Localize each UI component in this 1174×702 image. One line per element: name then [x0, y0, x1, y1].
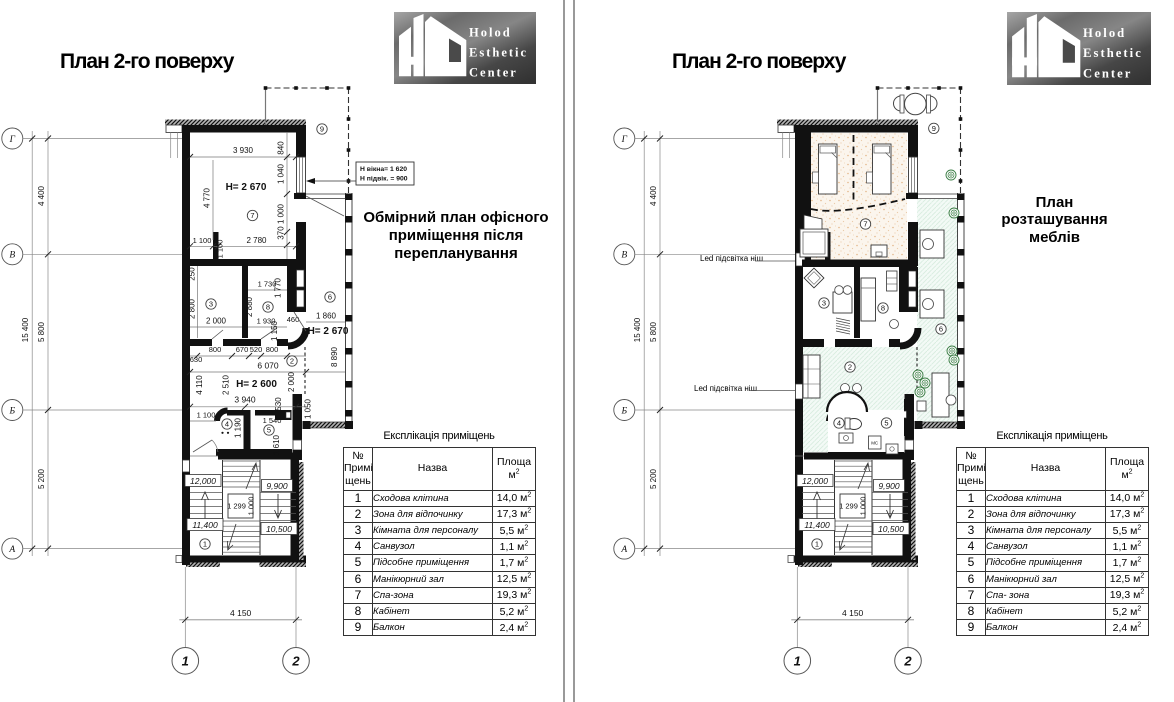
svg-text:6: 6 [328, 293, 332, 302]
svg-text:Н вікна= 1 620: Н вікна= 1 620 [360, 165, 407, 173]
svg-text:8: 8 [881, 304, 885, 313]
svg-text:А: А [8, 545, 15, 555]
svg-text:1: 1 [203, 540, 207, 549]
svg-text:Б: Б [620, 406, 627, 416]
svg-text:4: 4 [225, 420, 229, 429]
svg-text:530: 530 [274, 397, 283, 411]
svg-text:5: 5 [884, 419, 888, 428]
svg-text:6 070: 6 070 [257, 361, 279, 371]
svg-text:7: 7 [250, 211, 254, 220]
svg-text:Б: Б [8, 406, 15, 416]
svg-text:2: 2 [290, 357, 294, 366]
svg-text:2 510: 2 510 [222, 374, 231, 395]
svg-text:800: 800 [209, 345, 222, 354]
svg-text:H= 2 670: H= 2 670 [308, 326, 349, 337]
svg-text:H= 2 670: H= 2 670 [226, 182, 267, 193]
svg-text:4 110: 4 110 [195, 375, 204, 395]
svg-text:А: А [620, 545, 627, 555]
svg-text:10,500: 10,500 [878, 524, 904, 534]
svg-text:9,900: 9,900 [266, 481, 288, 491]
svg-text:4 400: 4 400 [649, 185, 658, 206]
svg-text:2: 2 [291, 653, 300, 668]
svg-text:1 610: 1 610 [272, 434, 281, 455]
svg-text:11,400: 11,400 [192, 520, 218, 530]
svg-text:15 400: 15 400 [21, 317, 30, 342]
svg-text:1 000: 1 000 [859, 497, 868, 516]
svg-text:6: 6 [939, 325, 943, 334]
svg-text:2 000: 2 000 [206, 317, 227, 326]
svg-text:1 100: 1 100 [216, 240, 225, 259]
svg-text:9: 9 [932, 124, 936, 133]
svg-text:4 400: 4 400 [37, 185, 46, 206]
svg-text:1 770: 1 770 [274, 277, 283, 298]
svg-text:2: 2 [848, 363, 852, 372]
svg-text:5 800: 5 800 [649, 321, 658, 342]
svg-text:5: 5 [267, 426, 271, 435]
svg-text:670: 670 [236, 345, 249, 354]
svg-text:1 299: 1 299 [227, 502, 246, 511]
svg-text:1: 1 [815, 540, 819, 549]
svg-text:В: В [9, 251, 15, 261]
svg-text:2 880: 2 880 [245, 296, 254, 317]
svg-text:Г: Г [621, 135, 628, 145]
svg-text:9: 9 [320, 125, 324, 134]
svg-text:2 780: 2 780 [246, 236, 267, 245]
svg-text:11,400: 11,400 [804, 520, 830, 530]
svg-text:2 000: 2 000 [287, 371, 296, 392]
svg-text:10,500: 10,500 [266, 524, 292, 534]
svg-text:H= 2 600: H= 2 600 [236, 379, 277, 390]
svg-text:1 000: 1 000 [277, 203, 286, 224]
svg-text:4 150: 4 150 [842, 608, 864, 618]
svg-text:1 190: 1 190 [234, 417, 243, 438]
svg-text:12,000: 12,000 [190, 476, 216, 486]
svg-text:250: 250 [188, 267, 197, 281]
svg-text:3: 3 [822, 299, 826, 308]
svg-text:1 860: 1 860 [316, 312, 337, 321]
svg-text:2 800: 2 800 [188, 298, 197, 319]
svg-text:1: 1 [182, 653, 189, 668]
svg-text:1: 1 [794, 653, 801, 668]
svg-text:1 100: 1 100 [193, 236, 212, 245]
svg-text:4: 4 [837, 419, 841, 428]
svg-text:1 050: 1 050 [304, 398, 313, 419]
svg-text:В: В [621, 251, 627, 261]
svg-text:1 000: 1 000 [247, 497, 256, 516]
svg-text:3 940: 3 940 [234, 395, 256, 405]
svg-text:5 200: 5 200 [649, 468, 658, 489]
svg-text:Н підвік. = 900: Н підвік. = 900 [360, 175, 408, 183]
svg-text:1 540: 1 540 [263, 416, 282, 425]
svg-text:2: 2 [903, 653, 912, 668]
svg-text:4 150: 4 150 [230, 608, 252, 618]
svg-text:520: 520 [250, 345, 263, 354]
svg-text:1 150: 1 150 [270, 320, 279, 341]
svg-text:800: 800 [266, 345, 279, 354]
svg-text:460: 460 [287, 315, 300, 324]
svg-text:840: 840 [277, 141, 286, 155]
svg-text:3 930: 3 930 [233, 146, 254, 155]
svg-text:1 040: 1 040 [277, 163, 286, 184]
svg-text:9,900: 9,900 [878, 481, 900, 491]
svg-text:1 100: 1 100 [197, 411, 216, 420]
svg-text:МС: МС [871, 441, 879, 446]
svg-text:8: 8 [266, 303, 270, 312]
svg-text:7: 7 [863, 220, 867, 229]
svg-text:15 400: 15 400 [633, 317, 642, 342]
svg-text:3: 3 [209, 300, 213, 309]
svg-text:12,000: 12,000 [802, 476, 828, 486]
svg-text:370: 370 [277, 226, 286, 240]
svg-text:8 890: 8 890 [330, 346, 339, 367]
svg-text:Г: Г [9, 135, 16, 145]
svg-text:5 200: 5 200 [37, 468, 46, 489]
svg-text:1 299: 1 299 [839, 502, 858, 511]
svg-text:5 800: 5 800 [37, 321, 46, 342]
svg-text:4 770: 4 770 [203, 187, 212, 208]
